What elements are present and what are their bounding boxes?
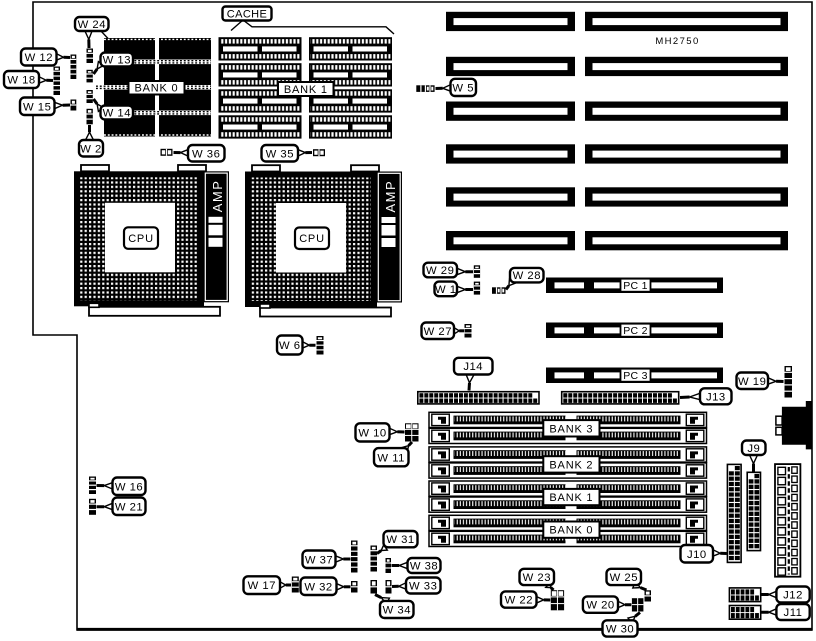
svg-text:BANK 2: BANK 2 [549, 459, 593, 471]
svg-text:W 1: W 1 [435, 284, 457, 296]
svg-text:W 37: W 37 [305, 554, 333, 566]
svg-text:MH2750: MH2750 [655, 36, 699, 47]
svg-text:W 31: W 31 [386, 534, 414, 546]
svg-text:W 35: W 35 [266, 148, 294, 160]
svg-text:W 5: W 5 [452, 83, 474, 95]
svg-text:W 23: W 23 [523, 572, 551, 584]
svg-text:W 10: W 10 [358, 428, 386, 440]
svg-text:W 32: W 32 [304, 581, 332, 593]
svg-text:W 28: W 28 [513, 270, 541, 282]
svg-text:BANK 1: BANK 1 [284, 84, 328, 96]
svg-text:J14: J14 [463, 361, 483, 373]
svg-text:BANK 1: BANK 1 [549, 492, 593, 504]
svg-text:AMP: AMP [210, 180, 225, 213]
svg-text:J13: J13 [706, 391, 726, 403]
svg-text:W 2: W 2 [80, 143, 102, 155]
svg-text:J12: J12 [783, 590, 803, 602]
svg-text:J11: J11 [784, 607, 803, 619]
svg-text:W 36: W 36 [192, 148, 220, 160]
svg-text:W 19: W 19 [738, 376, 766, 388]
svg-text:W 29: W 29 [426, 265, 454, 277]
svg-text:W 17: W 17 [248, 580, 276, 592]
svg-text:W 11: W 11 [377, 452, 405, 464]
svg-text:PC 3: PC 3 [623, 370, 648, 382]
svg-text:W 30: W 30 [606, 624, 634, 636]
svg-text:BANK 0: BANK 0 [135, 83, 179, 95]
svg-text:BANK 3: BANK 3 [549, 423, 593, 435]
svg-text:J9: J9 [747, 443, 760, 455]
svg-text:W 6: W 6 [279, 340, 301, 352]
svg-text:W 38: W 38 [410, 561, 438, 573]
svg-text:W 16: W 16 [115, 481, 143, 493]
svg-text:J10: J10 [687, 549, 707, 561]
svg-text:PC 2: PC 2 [623, 325, 648, 337]
svg-text:W 14: W 14 [103, 108, 131, 120]
svg-text:W 13: W 13 [103, 55, 131, 67]
svg-text:BANK 0: BANK 0 [549, 525, 593, 537]
svg-text:W 18: W 18 [7, 75, 35, 87]
svg-text:CACHE: CACHE [227, 9, 268, 21]
svg-text:W 33: W 33 [409, 581, 437, 593]
svg-text:W 34: W 34 [383, 605, 411, 617]
svg-text:AMP: AMP [383, 180, 398, 213]
svg-text:W 25: W 25 [610, 572, 638, 584]
svg-text:W 20: W 20 [586, 600, 614, 612]
svg-text:PC 1: PC 1 [623, 280, 648, 292]
svg-text:W 24: W 24 [78, 19, 106, 31]
svg-text:CPU: CPU [299, 233, 325, 245]
svg-text:CPU: CPU [128, 233, 154, 245]
svg-text:W 22: W 22 [505, 595, 533, 607]
svg-text:W 21: W 21 [115, 501, 143, 513]
svg-text:W 15: W 15 [23, 101, 51, 113]
svg-text:W 27: W 27 [424, 326, 452, 338]
svg-text:W 12: W 12 [25, 52, 53, 64]
